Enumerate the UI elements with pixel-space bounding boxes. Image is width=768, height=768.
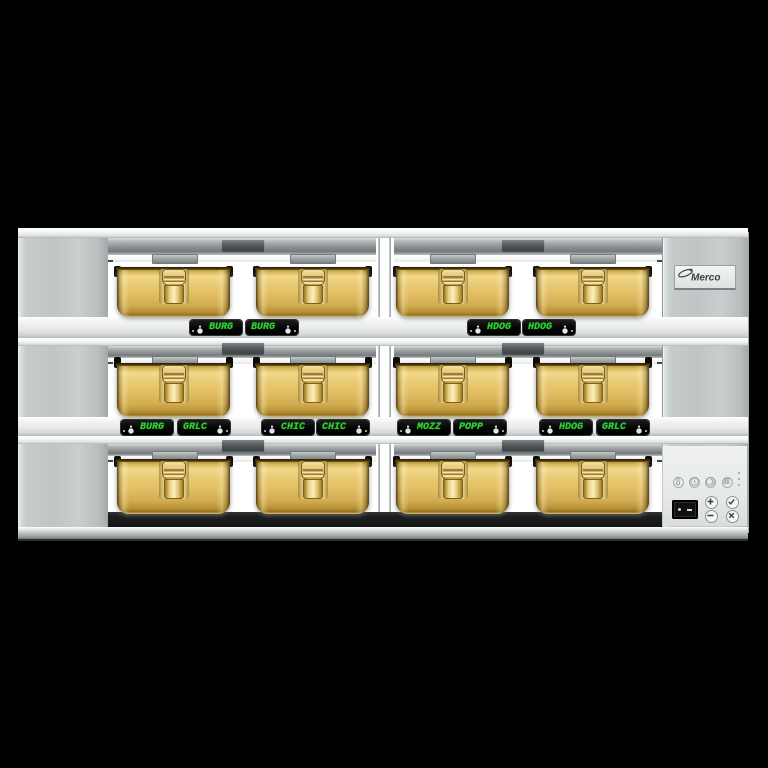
svg-text:Merco: Merco [691,273,720,284]
